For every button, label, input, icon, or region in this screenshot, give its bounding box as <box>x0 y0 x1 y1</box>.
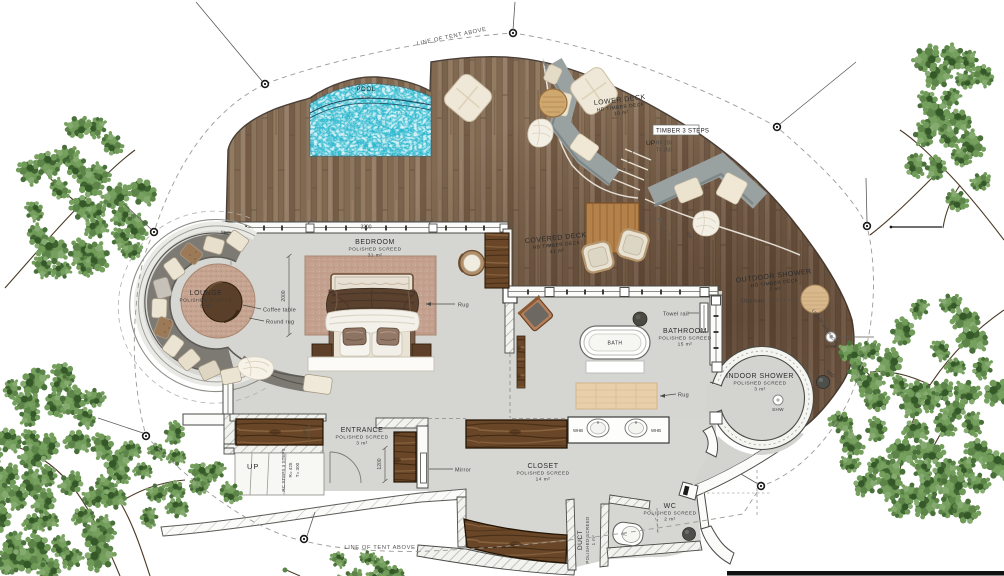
svg-text:POLISHED SCREED: POLISHED SCREED <box>733 381 786 387</box>
svg-text:POLISHED SCREED: POLISHED SCREED <box>585 516 590 563</box>
svg-text:BATH: BATH <box>608 341 623 347</box>
svg-text:3200: 3200 <box>360 225 371 231</box>
svg-text:POOL: POOL <box>356 87 375 93</box>
svg-text:POLISHED SCREED: POLISHED SCREED <box>335 435 388 441</box>
svg-text:POLISHED SCREED: POLISHED SCREED <box>348 247 401 253</box>
svg-text:T= 250: T= 250 <box>656 148 672 154</box>
svg-text:2 m²: 2 m² <box>664 517 676 523</box>
svg-text:LOUNGE: LOUNGE <box>190 290 223 297</box>
svg-text:R= 200: R= 200 <box>656 141 672 147</box>
svg-text:WHB: WHB <box>573 428 583 433</box>
svg-text:SHW: SHW <box>772 407 784 412</box>
svg-text:Rug: Rug <box>678 393 689 399</box>
svg-text:BATHROOM: BATHROOM <box>663 328 707 335</box>
svg-text:1 m²: 1 m² <box>591 535 596 545</box>
svg-text:CLOSET: CLOSET <box>527 463 558 470</box>
svg-text:Towel rail: Towel rail <box>663 312 689 318</box>
svg-text:Mirror: Mirror <box>455 468 471 474</box>
svg-text:RC STEPS 3 STEPS: RC STEPS 3 STEPS <box>281 448 286 491</box>
svg-text:15 m²: 15 m² <box>678 342 693 348</box>
svg-text:T= 300: T= 300 <box>295 462 300 477</box>
svg-text:Coffee table: Coffee table <box>263 308 296 314</box>
svg-text:UP: UP <box>646 140 655 147</box>
svg-text:POLISHED SCREED: POLISHED SCREED <box>179 298 232 304</box>
svg-text:2000: 2000 <box>281 290 287 301</box>
svg-text:Round rug: Round rug <box>266 320 294 326</box>
svg-text:400: 400 <box>302 428 307 436</box>
svg-text:14 m²: 14 m² <box>536 477 551 483</box>
svg-text:R= 425: R= 425 <box>288 462 293 477</box>
svg-text:Ottoman: Ottoman <box>741 299 764 305</box>
svg-text:POLISHED SCREED: POLISHED SCREED <box>658 336 711 342</box>
svg-text:3 m²: 3 m² <box>754 387 766 393</box>
svg-text:POLISHED SCREED: POLISHED SCREED <box>516 471 569 477</box>
svg-text:TIMBER 3 STEPS: TIMBER 3 STEPS <box>656 129 709 135</box>
svg-text:INDOOR SHOWER: INDOOR SHOWER <box>726 373 794 380</box>
svg-text:UP: UP <box>247 462 259 471</box>
svg-text:3 m²: 3 m² <box>356 441 368 447</box>
svg-text:POLISHED SCREED: POLISHED SCREED <box>643 511 696 517</box>
svg-text:ENTRANCE: ENTRANCE <box>341 427 384 434</box>
svg-text:Rug: Rug <box>458 303 469 309</box>
svg-text:31 m²: 31 m² <box>368 253 383 259</box>
svg-text:5 m²: 5 m² <box>200 304 212 310</box>
svg-text:WC: WC <box>664 503 677 510</box>
svg-text:5 m²: 5 m² <box>361 95 371 100</box>
svg-text:LINE OF TENT ABOVE: LINE OF TENT ABOVE <box>344 545 415 551</box>
svg-text:DUCT: DUCT <box>577 530 584 550</box>
svg-text:BEDROOM: BEDROOM <box>355 239 395 246</box>
svg-text:1200: 1200 <box>377 458 383 469</box>
svg-text:WHB: WHB <box>651 428 661 433</box>
